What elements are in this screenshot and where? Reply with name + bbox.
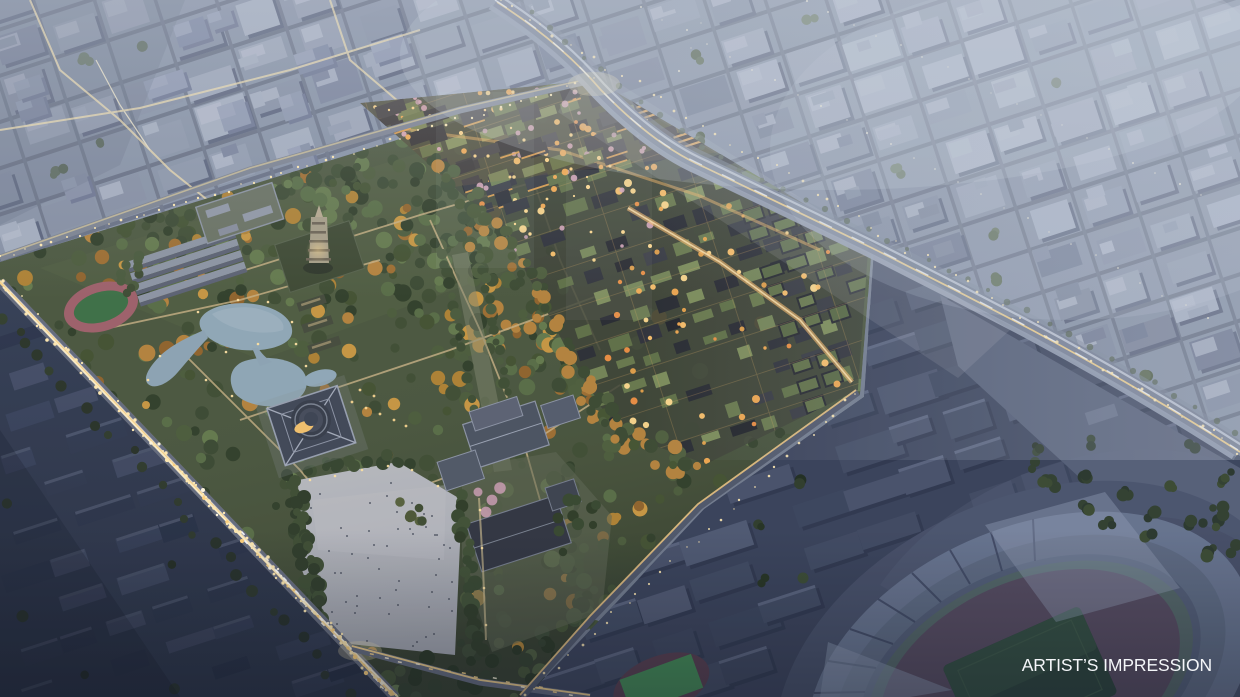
svg-text:ARTIST’S IMPRESSION: ARTIST’S IMPRESSION [1022,655,1212,675]
